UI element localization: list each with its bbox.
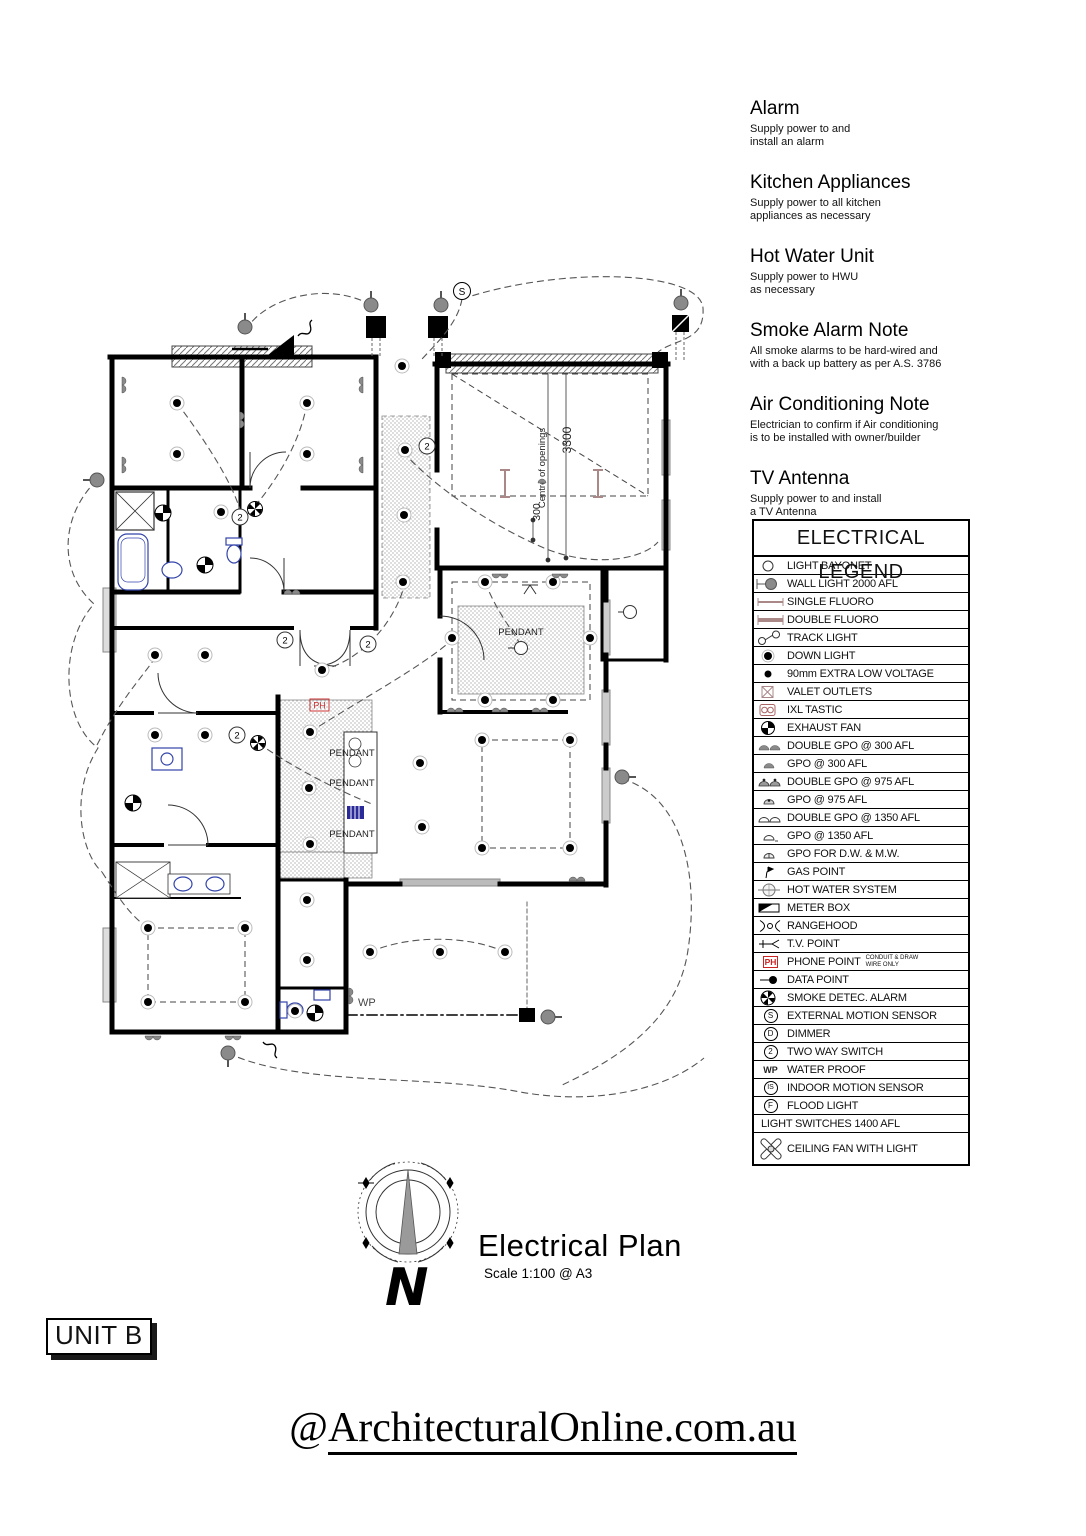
phone-point-note: CONDUIT & DRAW WIRE ONLY [866,955,919,968]
gpo-dw-mw-icon [754,846,787,861]
plan-title: Electrical Plan [478,1228,682,1264]
exhaust-fan-icon [754,720,787,736]
gpo-975-icon [754,792,787,807]
shower [116,492,154,530]
data-point-icon [754,972,787,987]
legend-row: 90mm EXTRA LOW VOLTAGE [754,665,968,683]
tv-point-icon [754,936,787,951]
note-body: Electrician to confirm if Air conditioni… [750,419,970,445]
indoor-motion-sensor-icon: IS [764,1081,778,1095]
footer-watermark: @ArchitecturalOnline.com.au [0,1404,1086,1452]
north-letter: N [385,1258,429,1318]
note-air-conditioning: Air Conditioning Note Electrician to con… [750,394,970,445]
double-gpo-1350-icon [754,810,787,825]
extra-low-voltage-icon [754,666,787,681]
bathtub [118,534,148,590]
legend-row: WP WATER PROOF [754,1061,968,1079]
pendant-label: PENDANT [329,748,375,759]
two-way-switch-icon: 2 [764,1045,778,1059]
gpo-1350-icon [754,828,787,843]
note-kitchen-appliances: Kitchen Appliances Supply power to all k… [750,172,970,223]
dim-300: 300 [531,503,543,521]
note-heading: Air Conditioning Note [750,394,970,416]
legend-row: 2 TWO WAY SWITCH [754,1043,968,1061]
legend-row: EXHAUST FAN [754,719,968,737]
rangehood-icon [754,918,787,934]
legend-row: WALL LIGHT 2000 AFL [754,575,968,593]
note-tv-antenna: TV Antenna Supply power to and install a… [750,468,970,519]
external-motion-sensor: S [454,283,471,300]
vanity-basin [206,877,224,891]
wall-light-icon [754,576,787,591]
legend-row: GPO @ 1350 AFL [754,827,968,845]
vanity-basin [174,877,192,891]
legend-row: LIGHT SWITCHES 1400 AFL [754,1115,968,1133]
legend-row: DOWN LIGHT [754,647,968,665]
legend-row: S EXTERNAL MOTION SENSOR [754,1007,968,1025]
double-fluoro-icon [754,612,787,627]
note-body: Supply power to and install an alarm [750,123,970,149]
wiring [68,277,704,1097]
legend-row: CEILING FAN WITH LIGHT [754,1133,968,1164]
note-heading: Kitchen Appliances [750,172,970,194]
smoke-detector-icon [754,990,787,1006]
legend-row: SINGLE FLUORO [754,593,968,611]
double-gpo-300-icon [754,738,787,753]
legend-row: DOUBLE GPO @ 975 AFL [754,773,968,791]
svg-text:2: 2 [282,636,287,647]
legend-row: GAS POINT [754,863,968,881]
footer-domain: ArchitecturalOnline.com.au [328,1405,797,1455]
note-body: Supply power to all kitchen appliances a… [750,197,970,223]
note-heading: Hot Water Unit [750,246,970,268]
pendant-label: PENDANT [498,627,544,638]
legend-row: DATA POINT [754,971,968,989]
gpo-300-icon [754,756,787,771]
pendant-label: PENDANT [329,829,375,840]
note-heading: TV Antenna [750,468,970,490]
toilet [226,538,242,563]
note-heading: Alarm [750,98,970,120]
pendant-label: PENDANT [329,778,375,789]
footer-at: @ [289,1405,328,1451]
light-bayonet-icon [754,558,787,573]
note-body: Supply power to HWU as necessary [750,271,970,297]
svg-text:2: 2 [237,513,242,524]
legend-row: METER BOX [754,899,968,917]
legend-row: HOT WATER SYSTEM [754,881,968,899]
north-needle [399,1170,417,1254]
legend-row: DOUBLE FLUORO [754,611,968,629]
hot-water-system-icon [754,882,787,898]
legend-row: F FLOOD LIGHT [754,1097,968,1115]
wp-label: WP [358,997,376,1009]
legend-row: PH PHONE POINT CONDUIT & DRAW WIRE ONLY [754,953,968,971]
meter-box-icon [754,900,787,915]
legend-title: ELECTRICAL LEGEND [754,521,968,557]
dim-centre-of-openings: Centre of openings [537,428,548,509]
section-marks [263,320,312,1058]
flood-light-icon: F [764,1099,778,1113]
legend-row: T.V. POINT [754,935,968,953]
electrical-legend: ELECTRICAL LEGEND LIGHT BAYONET WALL LIG… [752,519,970,1166]
dimmer-icon: D [764,1027,778,1041]
legend-row: DOUBLE GPO @ 1350 AFL [754,809,968,827]
legend-row: RANGEHOOD [754,917,968,935]
water-proof-icon: WP [763,1065,778,1075]
dim-3300: 3300 [560,426,574,453]
ixl-tastic-icon [754,702,787,717]
legend-row: GPO FOR D.W. & M.W. [754,845,968,863]
legend-row: GPO @ 975 AFL [754,791,968,809]
unit-label: UNIT B [46,1318,152,1355]
note-heading: Smoke Alarm Note [750,320,970,342]
note-body: All smoke alarms to be hard-wired and wi… [750,345,970,371]
double-gpo-975-icon [754,774,787,789]
note-body: Supply power to and install a TV Antenna [750,493,970,519]
svg-text:2: 2 [234,731,239,742]
plan-scale: Scale 1:100 @ A3 [484,1266,592,1281]
basin [162,562,182,578]
legend-row: SMOKE DETEC. ALARM [754,989,968,1007]
track-light-icon [754,630,787,645]
note-smoke-alarm: Smoke Alarm Note All smoke alarms to be … [750,320,970,371]
down-light-icon [754,648,787,663]
rangehood-symbol [522,585,538,594]
legend-row: DOUBLE GPO @ 300 AFL [754,737,968,755]
laundry-tub [152,748,182,770]
fluoro-lights [500,470,603,497]
svg-text:S: S [459,287,466,298]
svg-text:2: 2 [365,640,370,651]
notes-panel: Alarm Supply power to and install an ala… [750,98,970,542]
small-basin [314,990,330,1000]
phone-point-icon: PH [763,956,779,968]
legend-row: VALET OUTLETS [754,683,968,701]
note-hot-water-unit: Hot Water Unit Supply power to HWU as ne… [750,246,970,297]
valet-outlet-icon [754,684,787,699]
legend-row: TRACK LIGHT [754,629,968,647]
external-motion-sensor-icon: S [764,1009,778,1023]
single-fluoro-icon [754,594,787,609]
gas-point-icon [754,864,787,880]
legend-row: GPO @ 300 AFL [754,755,968,773]
legend-row: IS INDOOR MOTION SENSOR [754,1079,968,1097]
svg-text:2: 2 [424,442,429,453]
svg-text:PH: PH [313,701,326,711]
legend-row: IXL TASTIC [754,701,968,719]
note-alarm: Alarm Supply power to and install an ala… [750,98,970,149]
legend-row: D DIMMER [754,1025,968,1043]
ceiling-fan-icon [754,1134,787,1164]
compass: N [358,1162,458,1318]
